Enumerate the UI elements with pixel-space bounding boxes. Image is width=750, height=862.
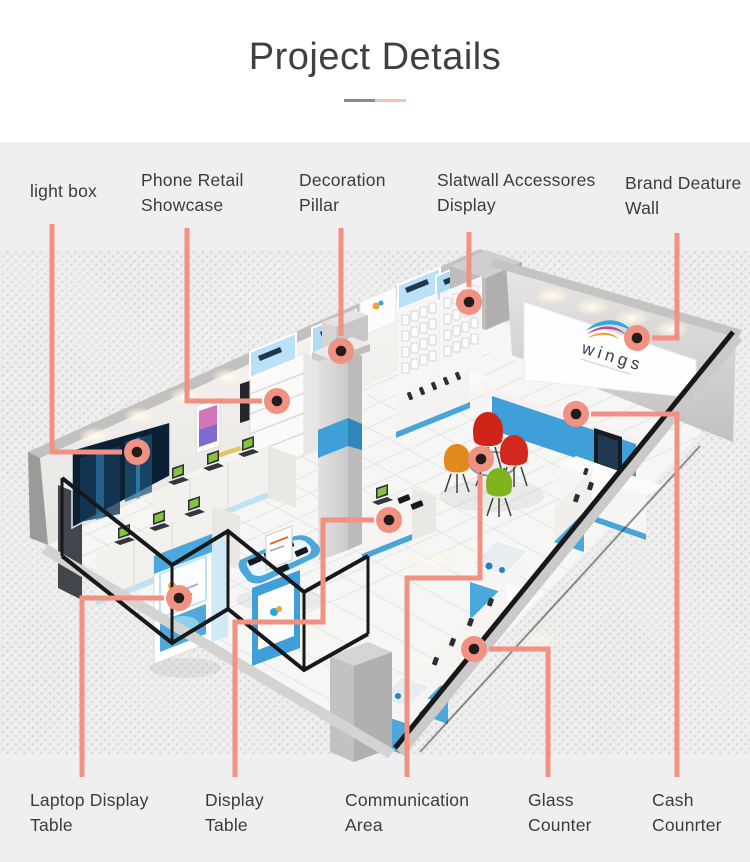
callout-dot-communication-area	[468, 446, 494, 472]
callout-label-phone-retail-showcase: Phone Retail Showcase	[141, 168, 244, 218]
callout-dot-brand-feature-wall	[624, 325, 650, 351]
callout-dot-phone-retail-showcase	[264, 388, 290, 414]
callout-label-display-table: Display Table	[205, 788, 264, 838]
callout-label-cash-counter: Cash Counrter	[652, 788, 722, 838]
callout-label-decoration-pillar: Decoration Pillar	[299, 168, 386, 218]
callout-dot-slatwall-display	[456, 289, 482, 315]
infographic-page: Project Details	[0, 0, 750, 862]
chair-orange	[444, 444, 470, 493]
callout-label-laptop-display-table: Laptop Display Table	[30, 788, 149, 838]
callout-label-slatwall-accessories-display: Slatwall Accessores Display	[437, 168, 595, 218]
callout-dot-decoration-pillar	[328, 338, 354, 364]
store-render: wings	[4, 249, 742, 762]
store-illustration: wings	[0, 0, 750, 862]
callout-label-light-box: light box	[30, 179, 97, 204]
callout-dot-glass-counter	[461, 636, 487, 662]
callout-dot-light-box	[124, 439, 150, 465]
chair-green	[486, 468, 512, 517]
callout-dot-laptop-display-table	[166, 585, 192, 611]
callout-label-glass-counter: Glass Counter	[528, 788, 592, 838]
callout-label-brand-feature-wall: Brand Deature Wall	[625, 171, 741, 221]
callout-dot-display-table	[376, 507, 402, 533]
callout-label-communication-area: Communication Area	[345, 788, 469, 838]
callout-dot-cash-counter	[563, 401, 589, 427]
